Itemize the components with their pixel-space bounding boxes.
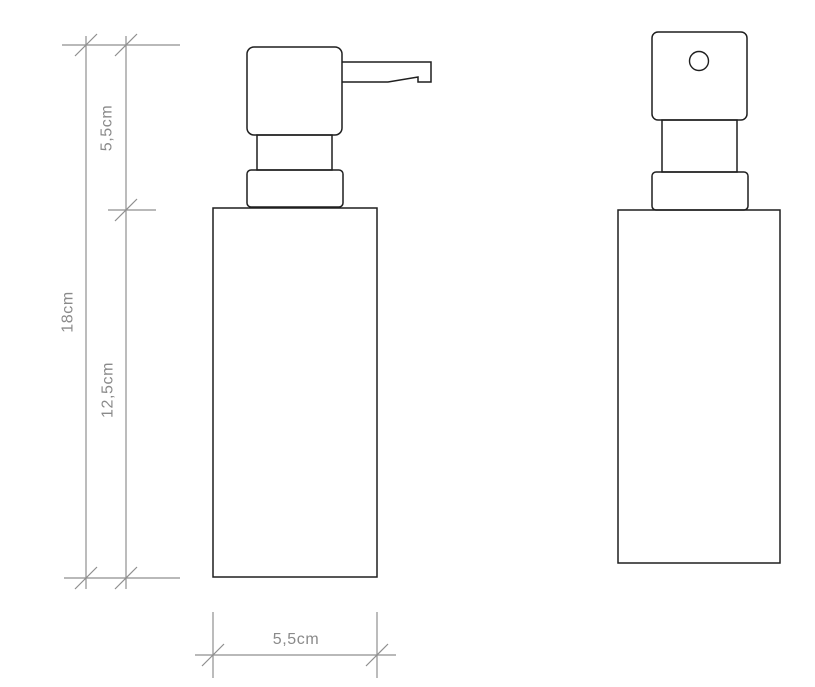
dimension-labels: 5,5cm 18cm 12,5cm 5,5cm (60, 105, 320, 648)
pump-head-side (247, 47, 342, 135)
label-body-width: 5,5cm (273, 631, 320, 648)
pump-head-front (652, 32, 747, 120)
dimension-lines-left (62, 34, 180, 589)
technical-drawing-canvas: 5,5cm 18cm 12,5cm 5,5cm (0, 0, 815, 687)
pump-neck-front (662, 120, 737, 172)
pump-collar-front (652, 172, 748, 210)
label-total-height: 18cm (60, 291, 77, 333)
nozzle-outlet-icon (690, 52, 709, 71)
pump-spout (342, 62, 431, 82)
bottle-body-side (213, 208, 377, 577)
pump-collar-side (247, 170, 343, 207)
pump-neck-side (257, 135, 332, 170)
dispenser-front-view (618, 32, 780, 563)
label-body-height: 12,5cm (100, 362, 117, 418)
dispenser-side-view (213, 47, 431, 577)
bottle-body-front (618, 210, 780, 563)
label-upper-height: 5,5cm (99, 105, 116, 152)
